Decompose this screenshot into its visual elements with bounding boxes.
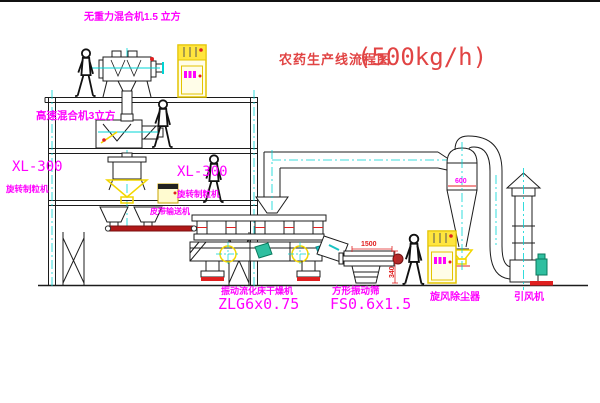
- label-sieve-model: FS0.6x1.5: [330, 297, 411, 312]
- diagram-title-capacity: (500kg/h): [357, 45, 487, 69]
- label-belt-conveyor: 皮带输送机: [150, 208, 190, 216]
- person-icon: [152, 100, 172, 147]
- label-cyclone: 旋风除尘器: [430, 293, 480, 303]
- dimension-cyclone-diameter: 600: [455, 178, 467, 185]
- person-icon: [403, 235, 425, 285]
- exhaust-duct-drawing: [256, 152, 447, 213]
- granulator-drawing: [107, 153, 178, 203]
- label-granulator-right-name: 旋转制粒机: [177, 190, 220, 199]
- process-flow-diagram: 农药生产线流程图 (500kg/h) 无重力混合机1.5 立方 高速混合机3立方…: [0, 0, 600, 403]
- belt-conveyor-drawing: [105, 226, 196, 231]
- label-high-speed-mixer: 高速混合机3立方: [36, 111, 115, 122]
- label-gravity-mixer: 无重力混合机1.5 立方: [84, 13, 181, 23]
- label-granulator-left-model: XL-300: [12, 160, 63, 174]
- duct-centerlines: [272, 150, 447, 213]
- fluid-bed-dryer-drawing: [190, 215, 330, 281]
- control-cabinet-icon: [178, 45, 206, 97]
- label-dryer-model: ZLG6x0.75: [218, 297, 299, 312]
- label-granulator-right-model: XL-300: [177, 165, 228, 179]
- person-icon: [75, 49, 95, 96]
- dimension-sieve-height: 340: [389, 266, 396, 278]
- gravity-mixer-drawing: [90, 51, 163, 118]
- dimension-sieve-width: 1500: [361, 241, 377, 248]
- label-fan: 引风机: [514, 293, 544, 303]
- control-cabinet-icon: [428, 231, 456, 283]
- label-granulator-left-name: 旋转制粒机: [6, 185, 49, 194]
